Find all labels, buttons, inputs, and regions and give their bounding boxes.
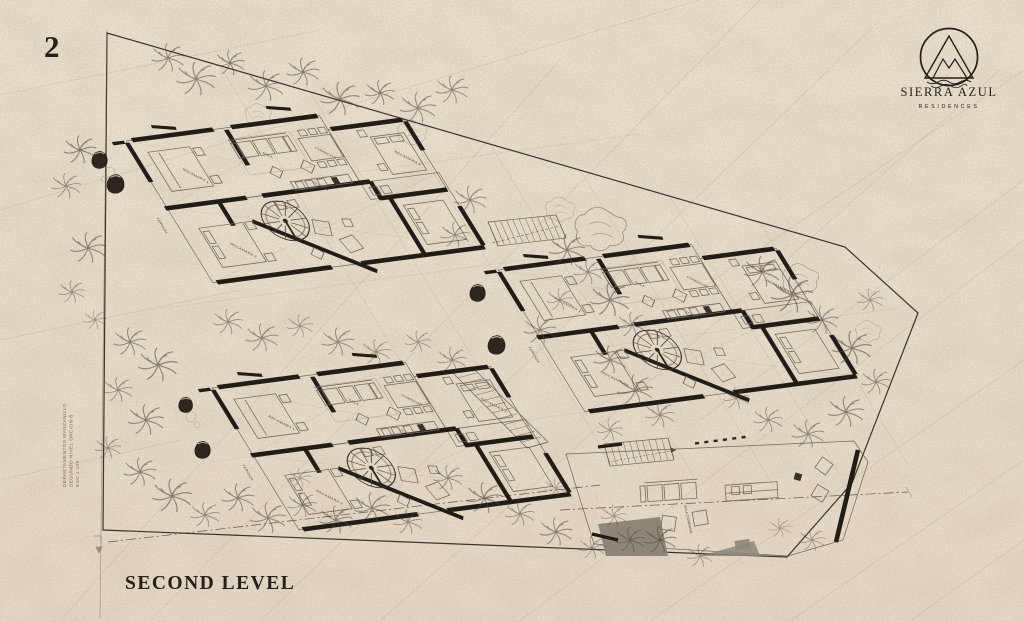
brand-subtitle: RESIDENCES bbox=[918, 104, 979, 110]
margin-note-line2: SEGUNDO NIVEL OPCION B bbox=[69, 414, 75, 487]
plan-sheet: RECAMARA 1 SALA COMEDOR COCINA RECAMARA … bbox=[0, 0, 1024, 621]
floor-plan-canvas: RECAMARA 1 SALA COMEDOR COCINA RECAMARA … bbox=[0, 0, 1024, 621]
brand-name: SIERRA AZUL bbox=[900, 85, 997, 99]
level-title: SECOND LEVEL bbox=[125, 573, 295, 594]
margin-note-line3: ESC 1:100 bbox=[75, 460, 81, 487]
sheet-number: 2 bbox=[44, 29, 60, 64]
margin-note-line1: DEPARTAMENTOS MANZANILLO bbox=[62, 403, 68, 487]
paper-tint bbox=[0, 0, 1024, 621]
